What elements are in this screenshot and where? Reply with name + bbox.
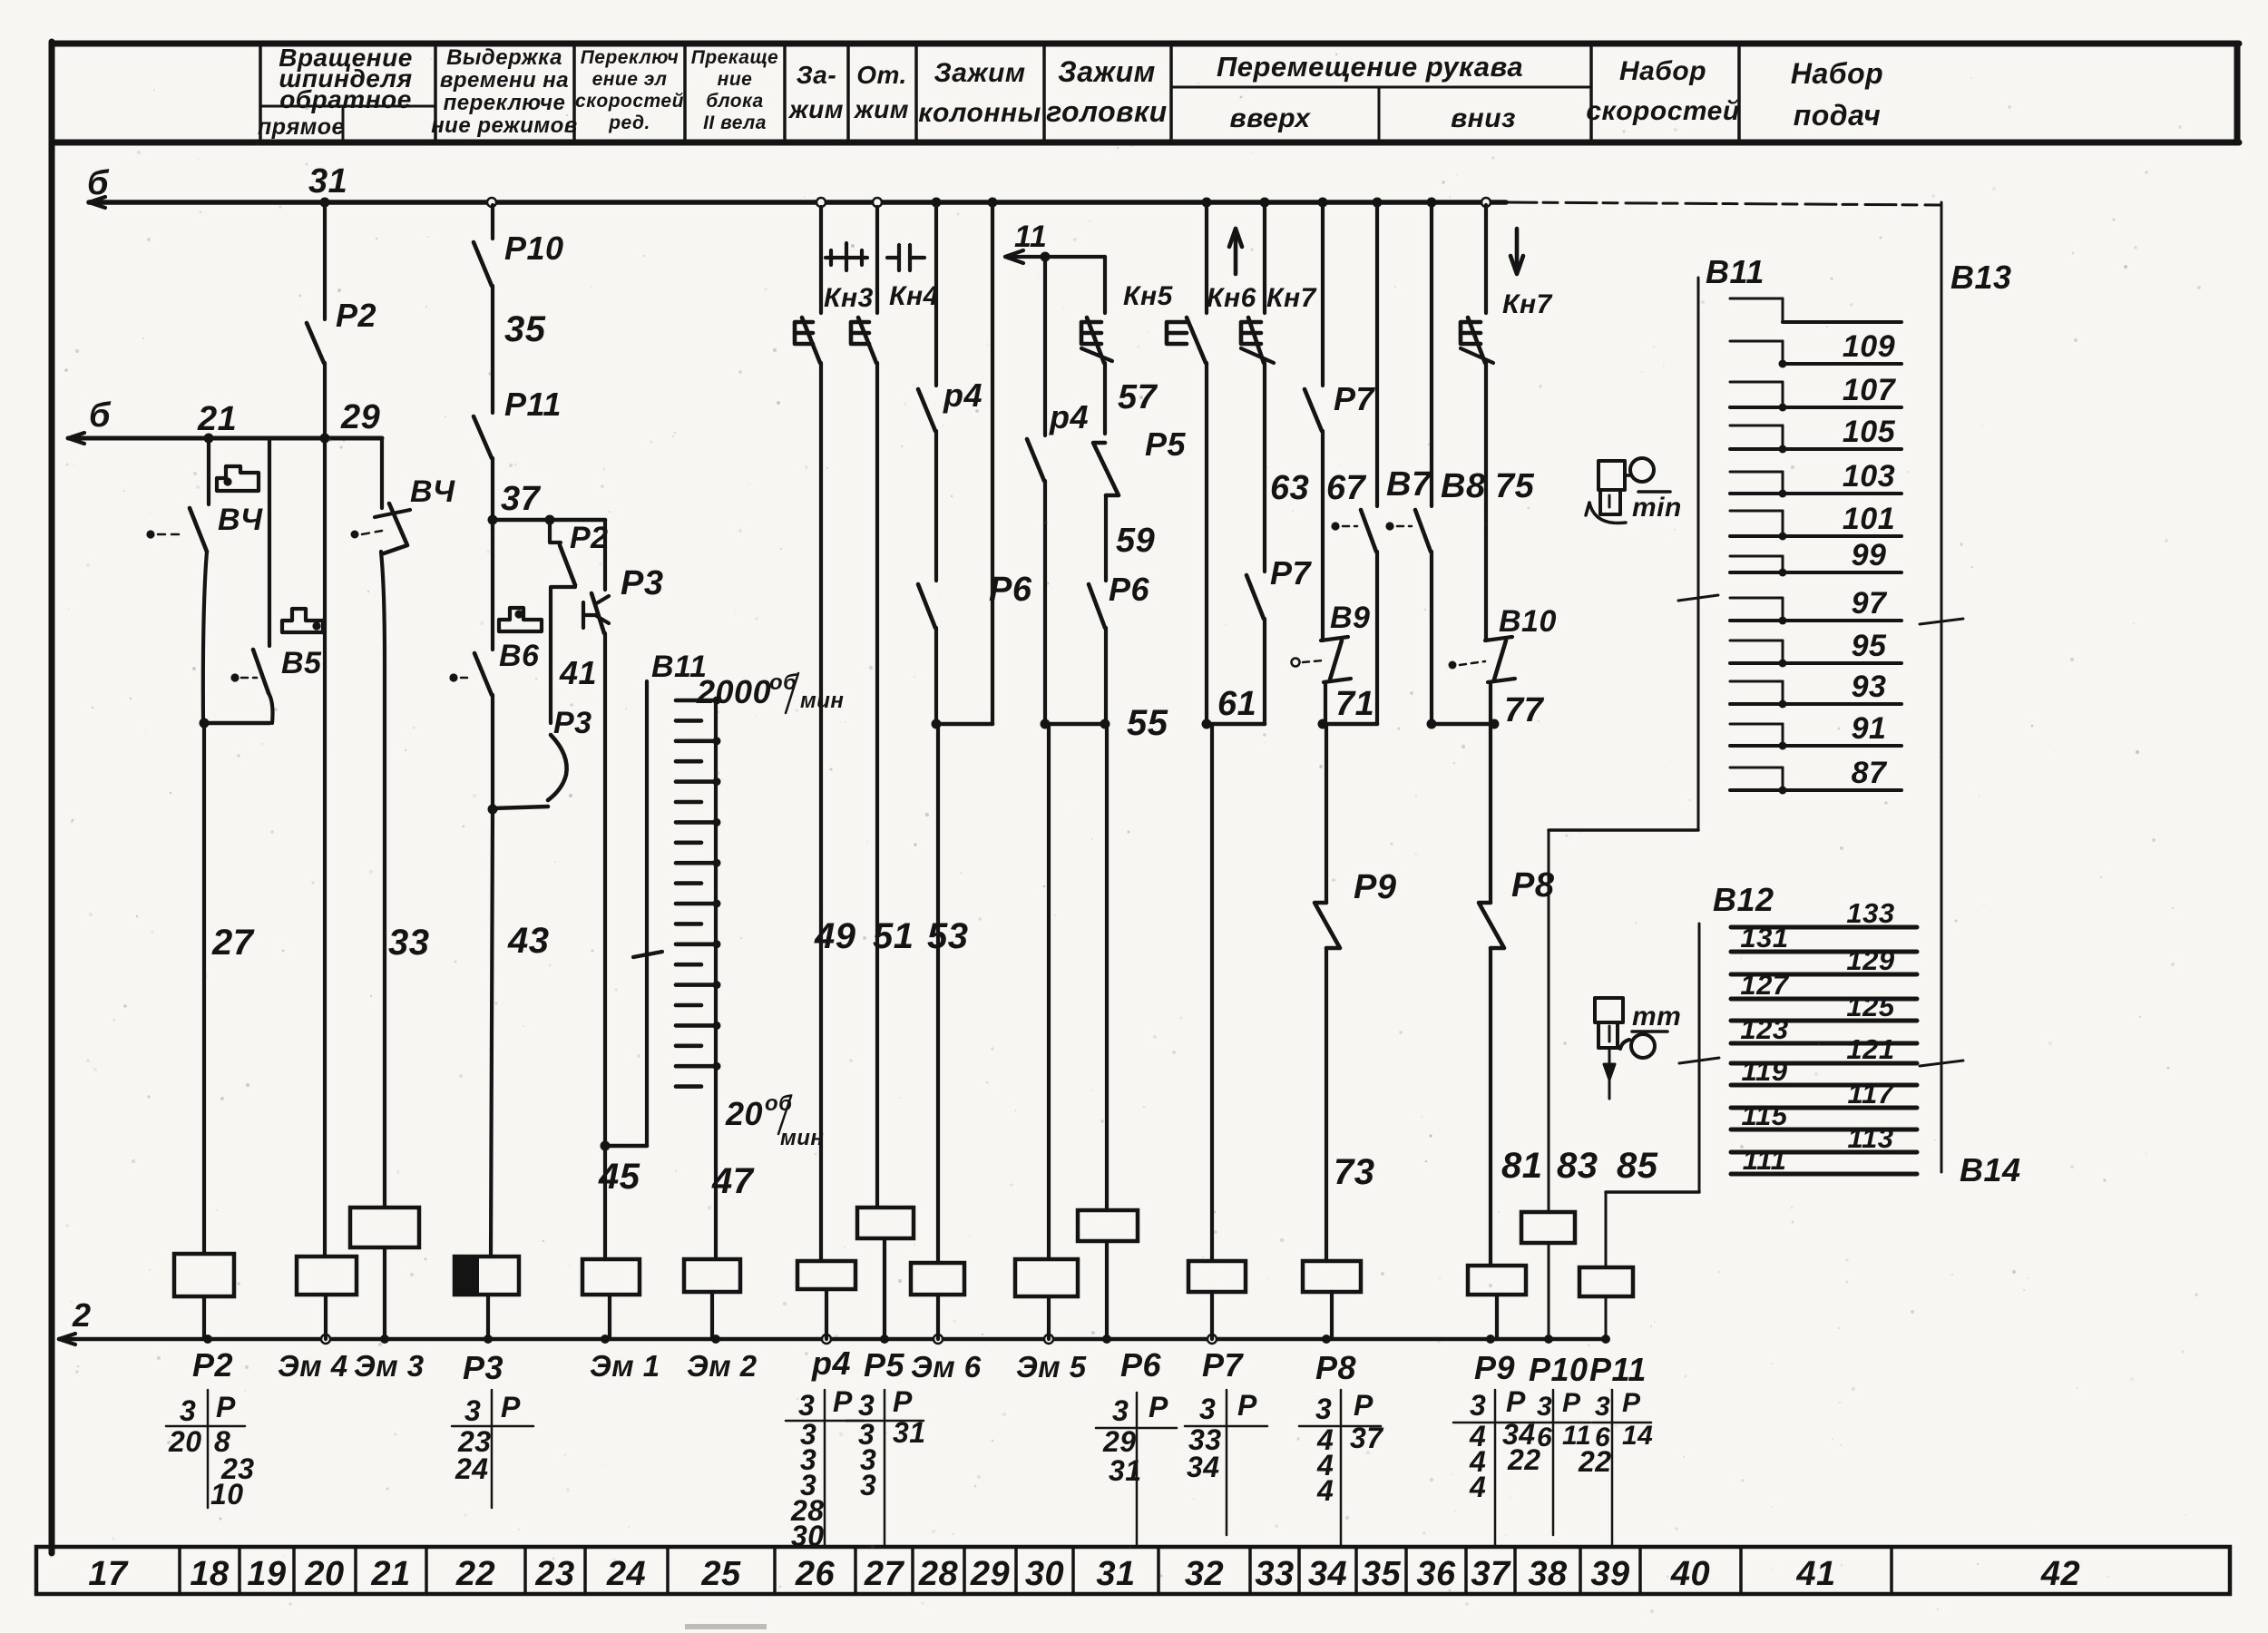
- svg-text:87: 87: [1852, 756, 1888, 790]
- svg-text:ред.: ред.: [608, 112, 650, 133]
- svg-text:6: 6: [1537, 1423, 1552, 1452]
- svg-text:Р: Р: [1562, 1388, 1581, 1418]
- svg-text:22: 22: [455, 1555, 495, 1593]
- svg-text:85: 85: [1617, 1146, 1658, 1186]
- svg-text:Прекаще: Прекаще: [691, 47, 778, 68]
- svg-text:29: 29: [340, 398, 380, 436]
- svg-text:Р7: Р7: [1270, 554, 1313, 592]
- svg-text:Р5: Р5: [1145, 425, 1187, 463]
- svg-text:31: 31: [1096, 1555, 1135, 1593]
- svg-text:131: 131: [1740, 922, 1788, 953]
- svg-text:37: 37: [1471, 1555, 1511, 1593]
- svg-text:Кн3: Кн3: [824, 283, 874, 313]
- svg-text:3: 3: [798, 1389, 815, 1422]
- svg-text:Кн7: Кн7: [1266, 283, 1317, 313]
- svg-text:Р2: Р2: [336, 297, 376, 334]
- svg-text:22: 22: [1507, 1443, 1541, 1476]
- svg-text:min: min: [1632, 493, 1682, 523]
- svg-text:75: 75: [1495, 467, 1535, 505]
- svg-text:20: 20: [725, 1095, 763, 1132]
- svg-text:3: 3: [1470, 1389, 1486, 1422]
- svg-text:21: 21: [370, 1555, 410, 1593]
- svg-text:В9: В9: [1330, 601, 1370, 635]
- svg-text:91: 91: [1852, 711, 1887, 746]
- svg-text:40: 40: [1670, 1555, 1710, 1593]
- svg-text:113: 113: [1848, 1122, 1894, 1154]
- svg-text:В6: В6: [499, 639, 540, 673]
- svg-text:4: 4: [1469, 1471, 1486, 1503]
- svg-text:Р: Р: [1237, 1389, 1257, 1422]
- svg-text:Р3: Р3: [463, 1349, 503, 1386]
- svg-text:43: 43: [507, 921, 550, 961]
- svg-text:Р8: Р8: [1315, 1349, 1356, 1386]
- svg-text:31: 31: [893, 1416, 926, 1449]
- svg-text:Р9: Р9: [1354, 868, 1396, 906]
- svg-text:Р2: Р2: [570, 521, 609, 555]
- svg-text:Эм 4: Эм 4: [278, 1349, 348, 1383]
- svg-text:Р10: Р10: [504, 230, 564, 267]
- svg-text:ние режимов: ние режимов: [431, 113, 578, 138]
- svg-text:mm: mm: [1632, 1002, 1681, 1032]
- svg-text:Перемещение рукава: Перемещение рукава: [1217, 51, 1523, 83]
- svg-text:14: 14: [1622, 1421, 1653, 1451]
- svg-text:105: 105: [1843, 415, 1896, 449]
- svg-text:107: 107: [1843, 373, 1897, 407]
- svg-text:19: 19: [247, 1555, 286, 1593]
- svg-text:скоростей: скоростей: [575, 91, 684, 112]
- svg-text:103: 103: [1843, 459, 1895, 494]
- svg-text:блока: блока: [706, 91, 763, 112]
- svg-text:р4: р4: [943, 376, 982, 414]
- svg-text:подач: подач: [1794, 99, 1882, 132]
- svg-text:123: 123: [1740, 1013, 1788, 1045]
- svg-text:3: 3: [1537, 1392, 1552, 1422]
- svg-text:61: 61: [1217, 685, 1256, 723]
- svg-text:24: 24: [455, 1452, 489, 1485]
- svg-text:37: 37: [1350, 1422, 1384, 1454]
- svg-text:83: 83: [1557, 1146, 1598, 1186]
- svg-text:Зажим: Зажим: [1058, 55, 1156, 88]
- svg-text:Р9: Р9: [1474, 1349, 1515, 1386]
- svg-text:18: 18: [190, 1555, 230, 1593]
- svg-text:23: 23: [534, 1555, 574, 1593]
- svg-text:117: 117: [1848, 1078, 1895, 1110]
- svg-text:115: 115: [1742, 1100, 1788, 1131]
- svg-text:3: 3: [1199, 1393, 1216, 1425]
- svg-text:Переключ: Переключ: [581, 47, 679, 68]
- svg-text:Р11: Р11: [1589, 1351, 1647, 1388]
- svg-text:Эм 1: Эм 1: [590, 1349, 660, 1383]
- svg-text:38: 38: [1528, 1555, 1568, 1593]
- svg-text:б: б: [89, 396, 112, 435]
- svg-text:95: 95: [1852, 629, 1887, 663]
- svg-text:133: 133: [1846, 897, 1894, 929]
- svg-text:3: 3: [858, 1389, 875, 1422]
- svg-text:Р: Р: [833, 1385, 853, 1418]
- svg-text:93: 93: [1852, 670, 1887, 704]
- svg-text:3: 3: [1315, 1393, 1332, 1425]
- svg-text:Эм 3: Эм 3: [354, 1349, 425, 1383]
- svg-text:41: 41: [559, 654, 597, 691]
- svg-text:27: 27: [864, 1555, 905, 1593]
- svg-text:33: 33: [1255, 1555, 1294, 1593]
- svg-text:30: 30: [791, 1520, 825, 1552]
- svg-text:127: 127: [1740, 969, 1789, 1001]
- svg-text:Набор: Набор: [1791, 57, 1883, 90]
- svg-text:49: 49: [814, 916, 856, 956]
- svg-text:17: 17: [88, 1555, 129, 1593]
- svg-text:10: 10: [210, 1478, 244, 1511]
- svg-text:Р: Р: [1622, 1388, 1641, 1418]
- svg-text:31: 31: [1109, 1454, 1142, 1487]
- svg-text:41: 41: [1795, 1555, 1835, 1593]
- svg-text:Эм 2: Эм 2: [687, 1349, 758, 1383]
- svg-text:29: 29: [970, 1555, 1010, 1593]
- svg-text:Р2: Р2: [192, 1346, 233, 1384]
- svg-text:57: 57: [1118, 378, 1158, 416]
- svg-text:73: 73: [1334, 1152, 1375, 1192]
- svg-text:мин: мин: [780, 1126, 824, 1150]
- svg-text:37: 37: [501, 480, 542, 518]
- svg-text:б: б: [87, 164, 110, 202]
- svg-text:77: 77: [1504, 691, 1545, 729]
- svg-text:101: 101: [1843, 502, 1895, 536]
- svg-text:35: 35: [1362, 1555, 1402, 1593]
- svg-text:Р3: Р3: [621, 564, 663, 602]
- svg-text:30: 30: [1025, 1555, 1064, 1593]
- svg-text:25: 25: [700, 1555, 741, 1593]
- svg-text:В5: В5: [281, 646, 322, 680]
- svg-text:ние: ние: [718, 69, 753, 90]
- svg-text:вверх: вверх: [1230, 103, 1312, 133]
- svg-text:Р6: Р6: [1109, 571, 1150, 608]
- svg-text:скоростей: скоростей: [1586, 96, 1739, 126]
- svg-text:Р: Р: [1506, 1385, 1526, 1418]
- svg-text:3: 3: [1112, 1394, 1129, 1427]
- svg-text:119: 119: [1742, 1055, 1788, 1087]
- svg-text:ение эл: ение эл: [592, 69, 668, 90]
- svg-text:В14: В14: [1960, 1151, 2021, 1188]
- svg-text:81: 81: [1501, 1146, 1543, 1186]
- svg-text:Р10: Р10: [1529, 1351, 1589, 1388]
- svg-text:Р11: Р11: [504, 386, 562, 423]
- svg-text:Набор: Набор: [1619, 56, 1706, 86]
- svg-text:Кн5: Кн5: [1123, 281, 1174, 311]
- svg-text:р4: р4: [811, 1345, 851, 1382]
- svg-text:97: 97: [1852, 586, 1888, 621]
- svg-text:11: 11: [1014, 220, 1047, 254]
- svg-text:Р: Р: [501, 1391, 521, 1423]
- svg-text:121: 121: [1846, 1033, 1894, 1065]
- svg-text:53: 53: [927, 916, 969, 956]
- svg-text:34: 34: [1187, 1451, 1220, 1483]
- svg-text:Выдержка: Выдержка: [446, 45, 562, 70]
- svg-text:ВЧ: ВЧ: [410, 474, 455, 509]
- svg-text:В13: В13: [1950, 259, 2012, 296]
- svg-text:Р5: Р5: [864, 1346, 905, 1384]
- svg-text:Кн6: Кн6: [1207, 283, 1256, 313]
- svg-text:26: 26: [795, 1555, 836, 1593]
- svg-text:71: 71: [1335, 685, 1374, 723]
- svg-text:Р: Р: [1354, 1389, 1374, 1422]
- svg-text:жим: жим: [787, 95, 844, 123]
- svg-text:3: 3: [860, 1469, 876, 1501]
- svg-text:р4: р4: [1049, 398, 1089, 435]
- svg-text:3: 3: [464, 1394, 481, 1427]
- svg-text:20: 20: [304, 1555, 344, 1593]
- svg-text:Р3: Р3: [553, 706, 592, 740]
- svg-text:21: 21: [197, 400, 237, 438]
- svg-text:Эм 6: Эм 6: [911, 1350, 982, 1384]
- svg-text:Р: Р: [216, 1391, 236, 1423]
- svg-text:125: 125: [1846, 991, 1894, 1022]
- svg-text:109: 109: [1843, 329, 1895, 364]
- svg-text:Р6: Р6: [1120, 1346, 1162, 1384]
- svg-text:В10: В10: [1499, 604, 1557, 639]
- svg-text:34: 34: [1308, 1555, 1347, 1593]
- svg-text:2: 2: [72, 1296, 92, 1334]
- svg-text:Кн4: Кн4: [889, 281, 939, 311]
- svg-text:29: 29: [1102, 1425, 1137, 1458]
- svg-text:20: 20: [168, 1425, 202, 1458]
- svg-text:Р: Р: [893, 1385, 913, 1418]
- svg-text:129: 129: [1846, 944, 1894, 976]
- svg-text:Кн7: Кн7: [1502, 289, 1553, 319]
- svg-text:22: 22: [1578, 1445, 1612, 1478]
- svg-text:4: 4: [1316, 1474, 1334, 1507]
- svg-text:Р7: Р7: [1202, 1346, 1245, 1384]
- svg-text:Эм 5: Эм 5: [1016, 1350, 1087, 1384]
- svg-text:59: 59: [1116, 522, 1155, 560]
- svg-text:55: 55: [1127, 703, 1168, 743]
- svg-text:II вела: II вела: [703, 112, 767, 133]
- svg-text:обратное: обратное: [279, 85, 412, 113]
- svg-text:33: 33: [388, 923, 430, 963]
- svg-text:В11: В11: [1706, 253, 1765, 290]
- svg-text:99: 99: [1852, 538, 1887, 572]
- svg-text:42: 42: [2040, 1555, 2080, 1593]
- svg-text:Р7: Р7: [1334, 380, 1376, 417]
- svg-text:27: 27: [211, 923, 255, 963]
- svg-text:2000: 2000: [696, 673, 771, 710]
- svg-text:32: 32: [1185, 1555, 1224, 1593]
- svg-text:111: 111: [1743, 1144, 1787, 1176]
- svg-text:колонны: колонны: [918, 98, 1041, 128]
- svg-text:24: 24: [606, 1555, 646, 1593]
- svg-text:Р6: Р6: [989, 571, 1032, 609]
- svg-text:В12: В12: [1713, 881, 1774, 918]
- svg-text:36: 36: [1416, 1555, 1456, 1593]
- svg-text:Р: Р: [1149, 1391, 1168, 1423]
- svg-text:39: 39: [1590, 1555, 1629, 1593]
- svg-text:51: 51: [873, 916, 914, 956]
- svg-text:67: 67: [1326, 469, 1367, 507]
- svg-text:3: 3: [180, 1394, 196, 1427]
- svg-text:головки: головки: [1046, 95, 1167, 128]
- svg-text:времени на: времени на: [440, 68, 569, 93]
- svg-text:От.: От.: [856, 61, 907, 89]
- svg-text:За-: За-: [797, 61, 836, 89]
- svg-text:прямое: прямое: [258, 114, 345, 140]
- svg-text:47: 47: [711, 1161, 755, 1201]
- svg-text:В8: В8: [1441, 467, 1486, 505]
- svg-text:35: 35: [504, 309, 546, 349]
- svg-text:28: 28: [918, 1555, 959, 1593]
- svg-text:31: 31: [308, 162, 347, 200]
- svg-text:Зажим: Зажим: [934, 58, 1025, 88]
- svg-text:3: 3: [1595, 1392, 1610, 1422]
- svg-text:переключе: переключе: [444, 91, 566, 115]
- svg-text:ВЧ: ВЧ: [218, 503, 263, 537]
- svg-text:жим: жим: [853, 95, 909, 123]
- svg-text:63: 63: [1270, 469, 1309, 507]
- svg-text:В7: В7: [1386, 465, 1432, 504]
- svg-text:вниз: вниз: [1451, 103, 1516, 133]
